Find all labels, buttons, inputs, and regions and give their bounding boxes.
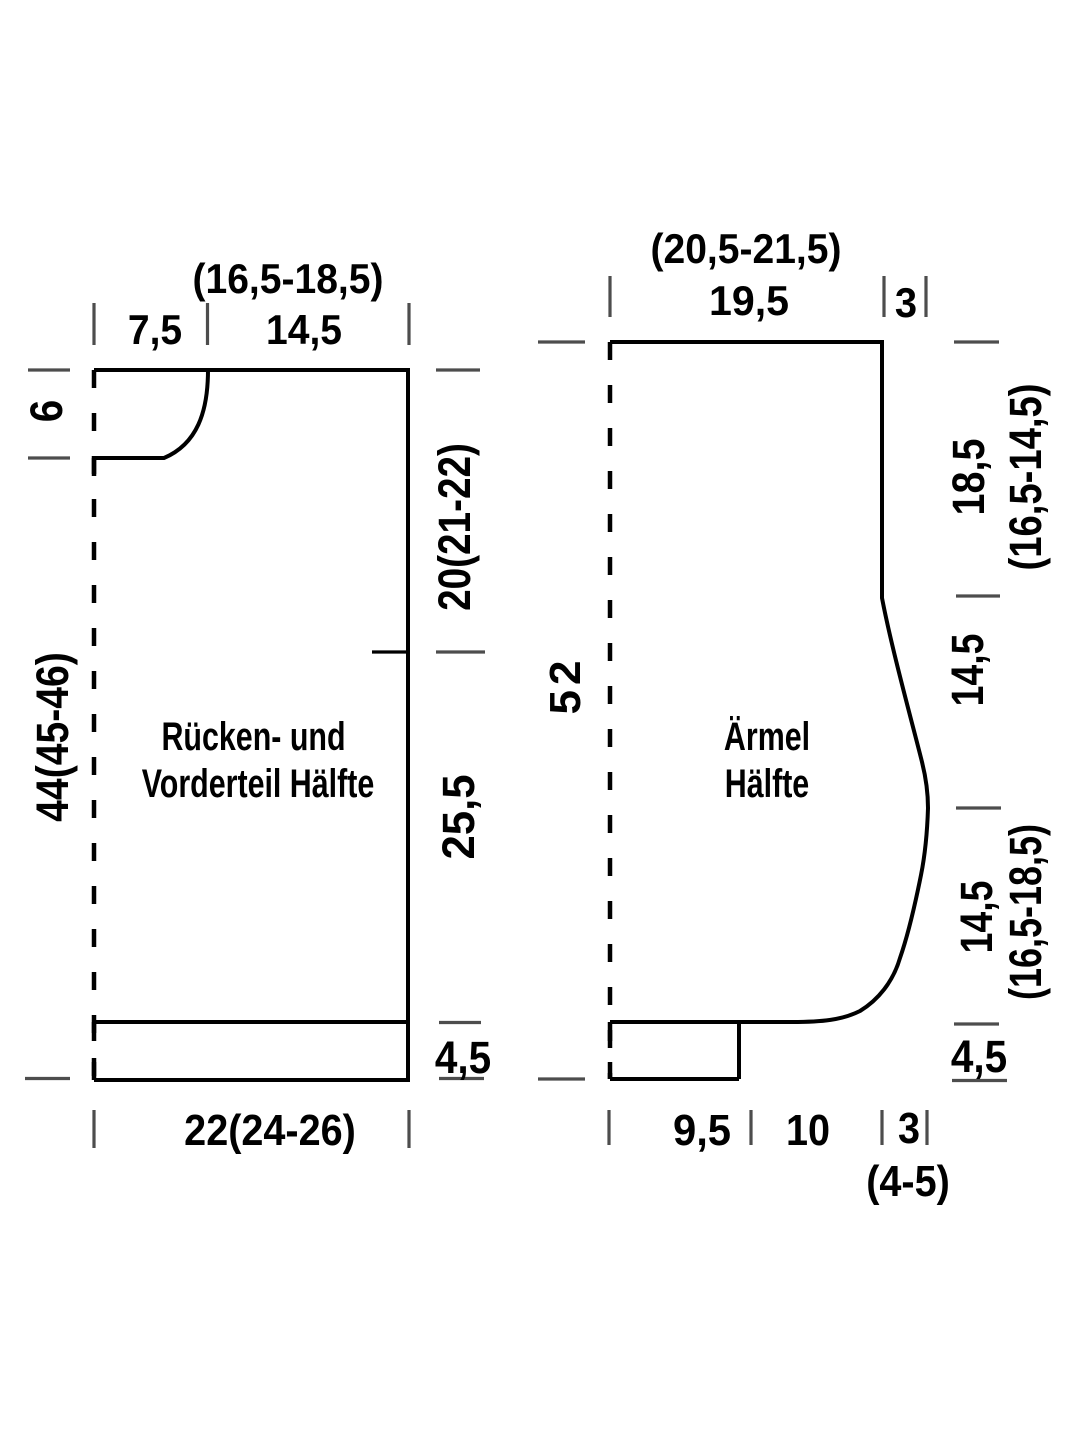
svg-text:(16,5-18,5): (16,5-18,5) xyxy=(1000,824,1051,1000)
svg-text:10: 10 xyxy=(786,1105,830,1154)
svg-text:22(24-26): 22(24-26) xyxy=(184,1105,356,1154)
svg-text:4,5: 4,5 xyxy=(435,1033,491,1083)
svg-text:14,5: 14,5 xyxy=(266,306,342,354)
svg-text:20(21-22): 20(21-22) xyxy=(429,443,479,611)
svg-text:Rücken- und: Rücken- und xyxy=(161,714,345,759)
svg-text:52: 52 xyxy=(541,656,590,715)
svg-text:44(45-46): 44(45-46) xyxy=(27,652,77,822)
svg-text:14,5: 14,5 xyxy=(943,634,993,707)
svg-text:19,5: 19,5 xyxy=(709,277,789,324)
svg-text:18,5: 18,5 xyxy=(944,438,994,515)
svg-text:(16,5-18,5): (16,5-18,5) xyxy=(192,255,383,303)
svg-text:(20,5-21,5): (20,5-21,5) xyxy=(650,225,841,273)
svg-text:Vorderteil Hälfte: Vorderteil Hälfte xyxy=(142,761,375,806)
svg-text:3: 3 xyxy=(895,279,917,326)
svg-text:14,5: 14,5 xyxy=(952,881,1002,954)
svg-text:4,5: 4,5 xyxy=(951,1032,1007,1082)
svg-text:Hälfte: Hälfte xyxy=(725,761,809,806)
svg-text:6: 6 xyxy=(22,400,72,423)
svg-text:25,5: 25,5 xyxy=(434,775,484,860)
svg-text:(16,5-14,5): (16,5-14,5) xyxy=(1000,383,1051,570)
svg-text:9,5: 9,5 xyxy=(673,1106,731,1155)
svg-text:Ärmel: Ärmel xyxy=(724,714,810,759)
svg-text:(4-5): (4-5) xyxy=(866,1156,950,1205)
svg-text:3: 3 xyxy=(898,1103,920,1152)
svg-text:7,5: 7,5 xyxy=(128,306,182,354)
